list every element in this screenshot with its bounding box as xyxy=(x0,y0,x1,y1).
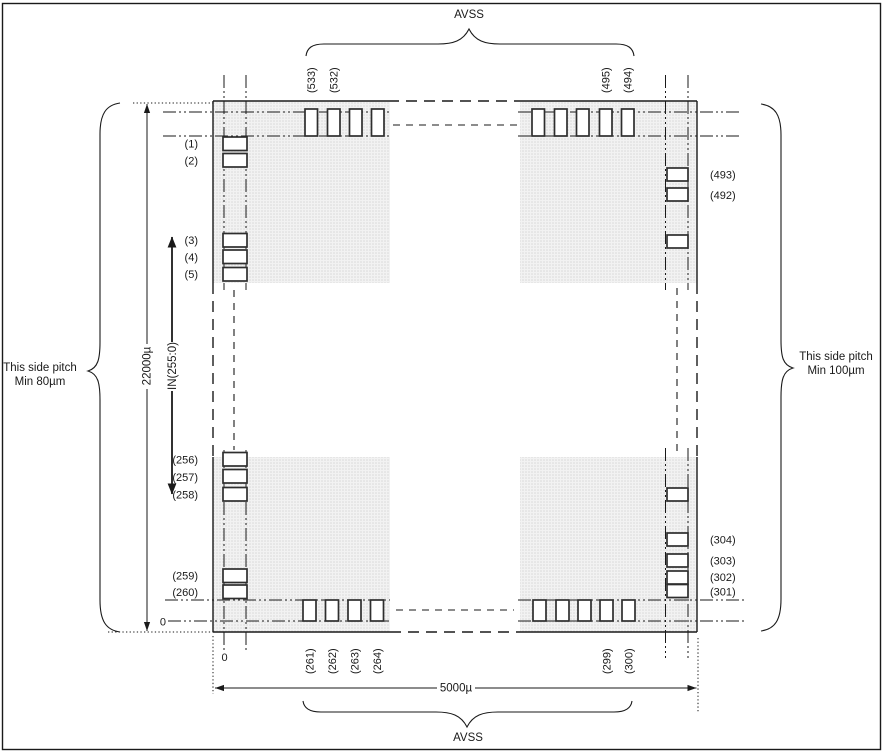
diagram-canvas: 22000µ 5000µ IN(255:0) AVSS AVSS This si… xyxy=(0,0,887,754)
origin-bottom-label: 0 xyxy=(221,652,227,664)
pin-label-301: (301) xyxy=(710,587,736,599)
bond-pad xyxy=(372,109,385,136)
pin-label-302: (302) xyxy=(710,572,736,584)
brace-bottom xyxy=(303,701,632,727)
pin-label-2: (2) xyxy=(185,156,198,168)
avss-top-label: AVSS xyxy=(454,9,484,21)
bond-pad xyxy=(622,600,635,621)
bond-pad xyxy=(667,188,688,201)
bond-pad xyxy=(556,600,569,621)
bond-pad xyxy=(223,234,247,248)
bond-pad xyxy=(600,109,613,136)
pin-label-533: (533) xyxy=(306,67,318,93)
pin-label-264: (264) xyxy=(372,648,384,674)
bond-pad xyxy=(667,488,688,501)
figure-border xyxy=(3,4,881,750)
pin-label-495: (495) xyxy=(601,67,613,93)
bond-pad xyxy=(667,571,688,584)
bond-pad xyxy=(223,453,247,467)
bond-pad xyxy=(667,554,688,567)
bond-pad xyxy=(667,235,688,248)
corner-shading xyxy=(213,101,697,632)
pin-label-257: (257) xyxy=(172,472,198,484)
pin-label-1: (1) xyxy=(185,139,198,151)
pin-label-532: (532) xyxy=(329,67,341,93)
bond-pad xyxy=(622,109,635,136)
bond-pad xyxy=(223,470,247,484)
bond-pad xyxy=(371,600,384,621)
bond-pad xyxy=(303,600,316,621)
width-dim-label: 5000µ xyxy=(440,683,473,695)
right-pitch-line1: This side pitch xyxy=(799,351,873,363)
bond-pad xyxy=(577,109,590,136)
pin-label-299: (299) xyxy=(602,648,614,674)
height-dim-label: 22000µ xyxy=(142,346,154,385)
pin-label-4: (4) xyxy=(185,252,198,264)
pin-label-262: (262) xyxy=(327,648,339,674)
bond-pad xyxy=(667,585,688,598)
right-pitch-line2: Min 100µm xyxy=(807,365,864,377)
left-pitch-line2: Min 80µm xyxy=(15,376,66,388)
pin-label-303: (303) xyxy=(710,556,736,568)
top-pin-labels: (533) (532) (495) (494) xyxy=(306,67,635,93)
left-pitch-line1: This side pitch xyxy=(3,362,77,374)
pin-label-5: (5) xyxy=(185,269,198,281)
brace-right xyxy=(761,104,793,631)
dimension-height: 22000µ xyxy=(108,103,213,632)
pin-label-263: (263) xyxy=(350,648,362,674)
pin-label-258: (258) xyxy=(172,490,198,502)
pin-label-256: (256) xyxy=(172,455,198,467)
pin-label-494: (494) xyxy=(623,67,635,93)
bus-range-label: IN(255:0) xyxy=(167,342,179,390)
brace-left xyxy=(88,103,120,632)
bond-pad xyxy=(667,533,688,546)
bond-pad xyxy=(328,109,341,136)
brace-top xyxy=(306,29,634,56)
bond-pad xyxy=(533,600,546,621)
bond-pad xyxy=(532,109,545,136)
pin-label-260: (260) xyxy=(172,587,198,599)
pad-layout-diagram: 22000µ 5000µ IN(255:0) AVSS AVSS This si… xyxy=(0,0,887,754)
bond-pad xyxy=(350,109,363,136)
pin-label-492: (492) xyxy=(710,190,736,202)
bond-pad xyxy=(326,600,339,621)
pin-label-261: (261) xyxy=(305,648,317,674)
bond-pad xyxy=(223,569,247,583)
origin-left-label: 0 xyxy=(160,617,166,629)
bond-pad xyxy=(305,109,318,136)
bond-pad xyxy=(223,137,247,151)
avss-bottom-label: AVSS xyxy=(453,732,483,744)
bond-pad xyxy=(667,168,688,181)
pin-label-300: (300) xyxy=(624,648,636,674)
bond-pad xyxy=(578,600,591,621)
bond-pad xyxy=(223,488,247,502)
bond-pad xyxy=(348,600,361,621)
bond-pad xyxy=(223,268,247,282)
pin-label-259: (259) xyxy=(172,571,198,583)
pin-label-3: (3) xyxy=(185,235,198,247)
bond-pad xyxy=(223,154,247,168)
bond-pad xyxy=(223,585,247,599)
bond-pad xyxy=(600,600,613,621)
bond-pad xyxy=(223,250,247,264)
bottom-pin-labels: (261) (262) (263) (264) (299) (300) 0 xyxy=(221,648,635,674)
right-pin-labels: (493) (492) (304) (303) (302) (301) xyxy=(710,170,736,599)
pin-label-304: (304) xyxy=(710,535,736,547)
bond-pad xyxy=(555,109,568,136)
pin-label-493: (493) xyxy=(710,170,736,182)
